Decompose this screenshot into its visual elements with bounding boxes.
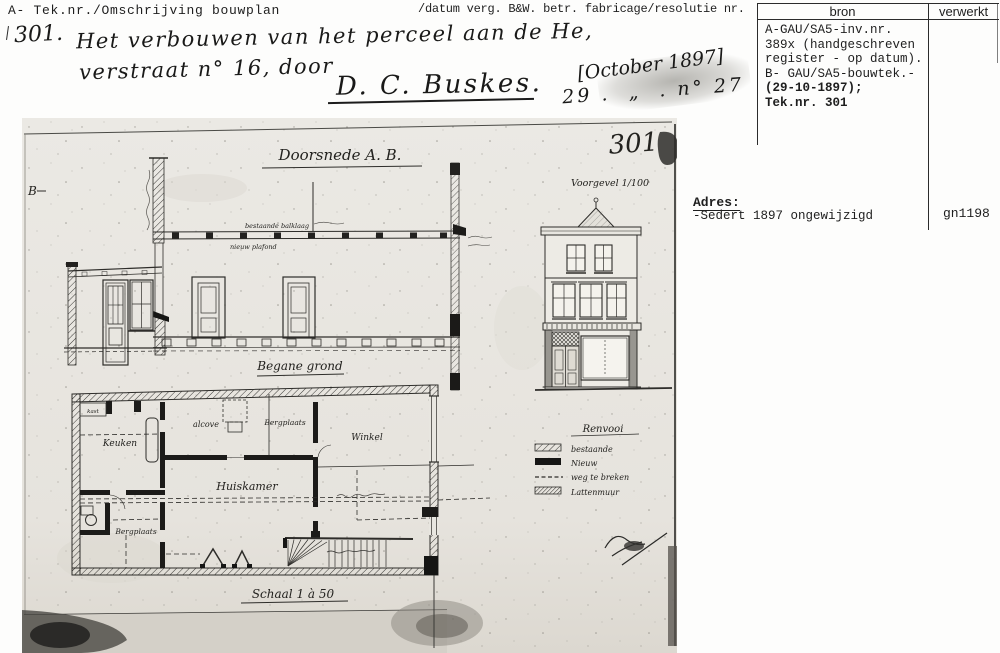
room-label-keuken: Keuken [102, 439, 137, 449]
handwritten-number: 301. [13, 21, 63, 49]
handwritten-line2: verstraat n° 16, door [79, 54, 334, 85]
table-header-bron: bron [757, 4, 928, 19]
table-left-border [757, 3, 758, 145]
stain-top-right [658, 132, 677, 165]
facade-title: Voorgevel 1/100 [571, 178, 649, 189]
legend-swatch-lattenmuur [535, 487, 561, 494]
room-label-alcove: alcove [193, 420, 219, 429]
bron-line: B- GAU/SA5-bouwtek.- [765, 67, 923, 82]
bron-line: 389x (handgeschreven [765, 38, 923, 53]
room-label-winkel: Winkel [351, 433, 383, 443]
section-title: Doorsnede A. B. [278, 146, 402, 164]
bron-cell: A-GAU/SA5-inv.nr. 389x (handgeschreven r… [765, 23, 923, 111]
room-label-huiskamer: Huiskamer [215, 480, 278, 493]
beam-label-bottom: nieuw plafond [230, 243, 277, 251]
scale-label: Schaal 1 à 50 [252, 587, 335, 601]
margin-tick [6, 26, 9, 40]
legend-label-bestaande: bestaande [571, 445, 613, 454]
scanned-blueprint: Doorsnede A. B. B bestaande balklaag nie… [22, 118, 677, 653]
bron-line: register - op datum). [765, 52, 923, 67]
plan-title: Begane grond [256, 359, 343, 373]
beam-label-top: bestaande balklaag [245, 222, 309, 230]
adres-value: -Sedert 1897 ongewijzigd [693, 209, 873, 223]
handwritten-signature: D. C. Buskes. [336, 68, 543, 102]
legend-label-lattenmuur: Lattenmuur [570, 488, 620, 497]
legend-label-wegtebreken: weg te breken [571, 473, 629, 482]
room-label-bergplaats-top: Bergplaats [263, 418, 305, 427]
section-label-b: B [27, 184, 37, 198]
pencil-number: 301 [608, 127, 660, 160]
room-label-kast: kast [87, 409, 99, 415]
archive-code: gn1198 [943, 206, 990, 221]
table-column-divider [928, 3, 929, 230]
table-header-verwerkt: verwerkt [928, 4, 999, 19]
header-left-label: A- Tek.nr./Omschrijving bouwplan [8, 3, 280, 18]
room-label-bergplaats-bottom: Bergplaats [114, 527, 156, 536]
table-header-underline [757, 19, 999, 20]
archive-card-page: { "header": { "left_label": "A- Tek.nr./… [0, 0, 1000, 653]
handwritten-line1: Het verbouwen van het perceel aan de He, [76, 19, 594, 54]
bron-line: (29-10-1897); [765, 81, 923, 96]
bron-line: A-GAU/SA5-inv.nr. [765, 23, 923, 38]
legend-swatch-nieuw [535, 458, 561, 465]
header-right-label: /datum verg. B&W. betr. fabricage/resolu… [418, 2, 745, 16]
stain-right-edge [668, 546, 677, 646]
legend-title: Renvooi [582, 424, 624, 435]
legend-label-nieuw: Nieuw [570, 459, 597, 468]
bron-line: Tek.nr. 301 [765, 96, 923, 111]
legend-swatch-bestaande [535, 444, 561, 451]
